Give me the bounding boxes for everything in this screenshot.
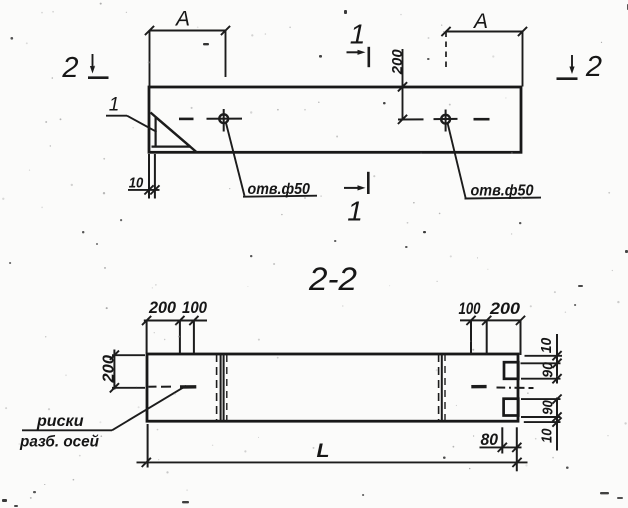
svg-text:200: 200 bbox=[489, 300, 521, 318]
svg-text:200: 200 bbox=[389, 49, 406, 76]
svg-text:1: 1 bbox=[347, 196, 363, 227]
svg-text:1: 1 bbox=[350, 19, 366, 50]
svg-text:90: 90 bbox=[541, 362, 557, 378]
svg-text:90: 90 bbox=[541, 400, 557, 415]
svg-text:2-2: 2-2 bbox=[308, 261, 357, 297]
svg-text:разб. осей: разб. осей bbox=[19, 433, 99, 450]
svg-text:10: 10 bbox=[129, 176, 144, 192]
svg-text:1: 1 bbox=[109, 95, 120, 116]
svg-text:100: 100 bbox=[459, 300, 482, 318]
svg-text:отв.ф50: отв.ф50 bbox=[248, 181, 311, 198]
svg-text:10: 10 bbox=[539, 338, 555, 354]
svg-text:риски: риски bbox=[36, 413, 84, 430]
svg-text:2: 2 bbox=[585, 51, 602, 83]
svg-text:A: A bbox=[472, 10, 488, 33]
svg-text:100: 100 bbox=[182, 299, 208, 317]
svg-text:10: 10 bbox=[540, 429, 556, 444]
svg-text:80: 80 bbox=[481, 431, 499, 449]
svg-text:отв.ф50: отв.ф50 bbox=[471, 183, 534, 200]
svg-text:L: L bbox=[317, 441, 330, 462]
svg-text:A: A bbox=[174, 8, 190, 31]
svg-text:200: 200 bbox=[101, 355, 118, 384]
svg-text:2: 2 bbox=[61, 52, 78, 84]
svg-text:200: 200 bbox=[148, 299, 177, 317]
